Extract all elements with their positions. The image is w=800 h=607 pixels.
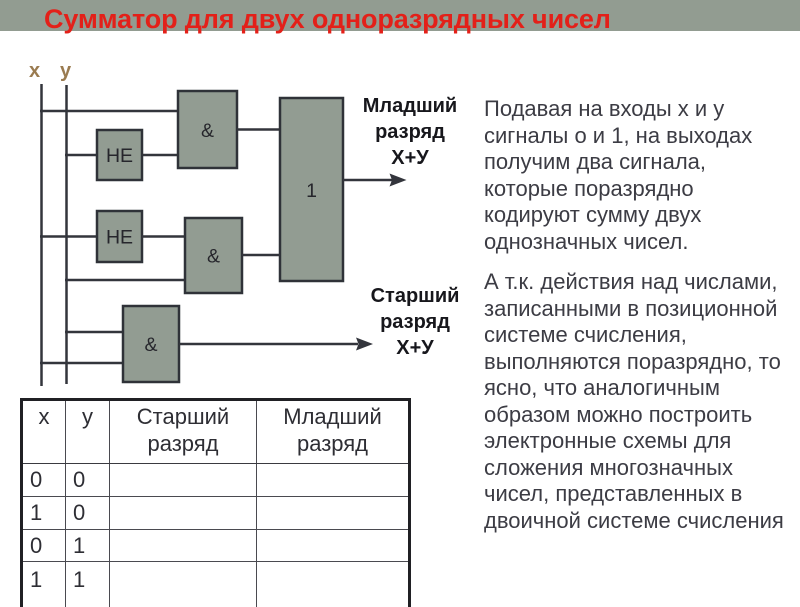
- svg-text:НЕ: НЕ: [106, 227, 133, 249]
- svg-text:&: &: [207, 246, 220, 268]
- svg-text:НЕ: НЕ: [106, 145, 133, 167]
- svg-text:&: &: [201, 120, 214, 142]
- svg-text:&: &: [144, 334, 157, 356]
- svg-text:1: 1: [306, 180, 317, 202]
- svg-text:y: y: [60, 60, 72, 82]
- svg-text:x: x: [29, 60, 40, 82]
